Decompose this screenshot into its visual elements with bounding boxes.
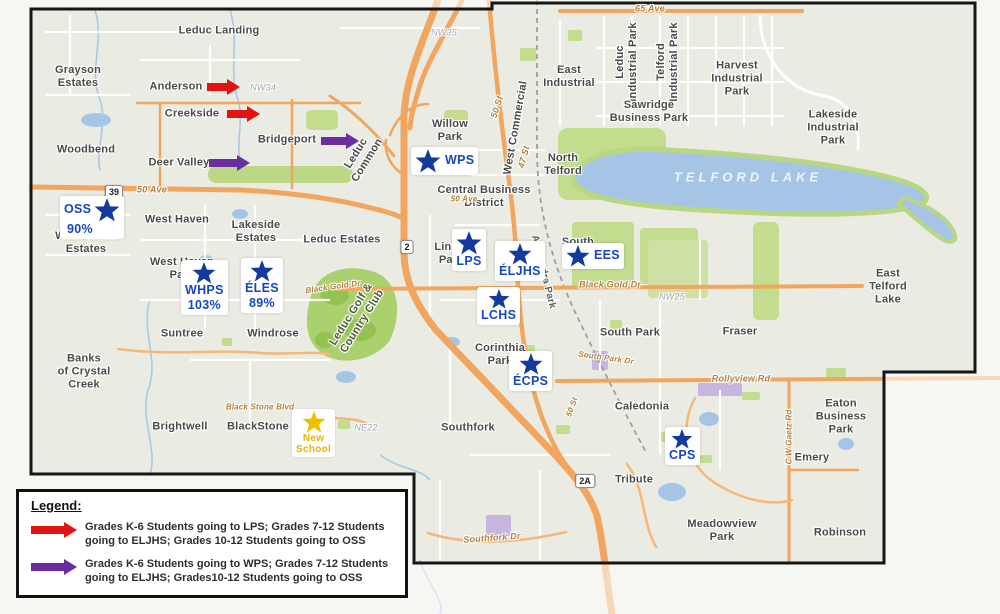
route-arrow-icon [31, 559, 77, 575]
legend-rows: Grades K-6 Students going to LPS; Grades… [31, 520, 395, 585]
legend-item-purple: Grades K-6 Students going to WPS; Grades… [31, 557, 395, 586]
legend-item-text: Grades K-6 Students going to WPS; Grades… [85, 557, 395, 586]
legend-item-red: Grades K-6 Students going to LPS; Grades… [31, 520, 395, 549]
leduc-school-boundary-map: Leduc LandingGrayson EstatesAndersonCree… [0, 0, 1000, 614]
legend-item-text: Grades K-6 Students going to LPS; Grades… [85, 520, 395, 549]
legend-title: Legend: [31, 498, 395, 513]
legend: Legend: Grades K-6 Students going to LPS… [16, 489, 408, 598]
route-arrow-icon [31, 522, 77, 538]
